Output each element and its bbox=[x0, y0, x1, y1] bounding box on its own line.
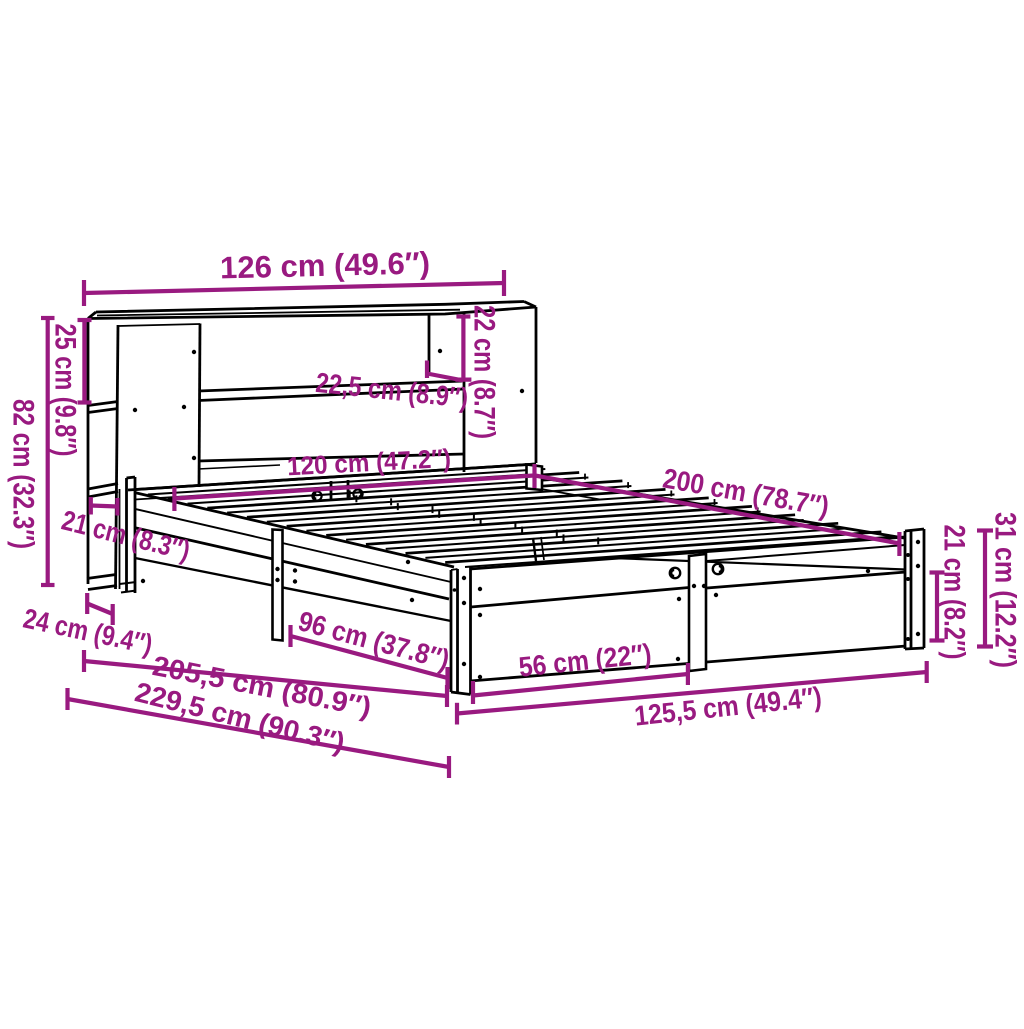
svg-text:25 cm (9.8″): 25 cm (9.8″) bbox=[49, 324, 82, 457]
svg-text:126 cm (49.6″): 126 cm (49.6″) bbox=[220, 245, 431, 285]
svg-text:82 cm (32.3″): 82 cm (32.3″) bbox=[7, 399, 40, 549]
svg-text:22 cm (8.7″): 22 cm (8.7″) bbox=[468, 305, 501, 439]
svg-text:31 cm (12.2″): 31 cm (12.2″) bbox=[989, 512, 1022, 668]
svg-text:21 cm (8.2″): 21 cm (8.2″) bbox=[938, 525, 971, 660]
